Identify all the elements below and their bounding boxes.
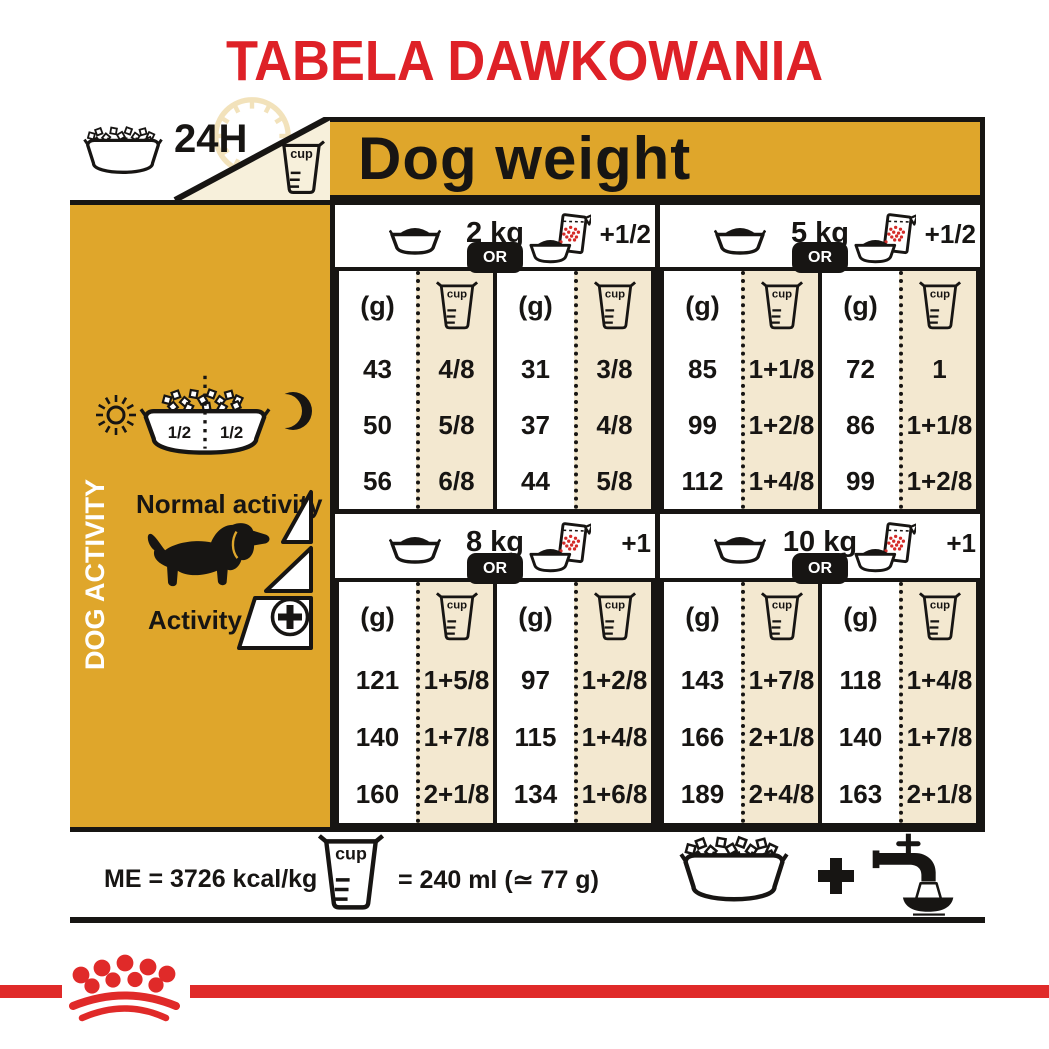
subtable: (g) 72 86 99 cup 1 1+1/8 1+2/8: [818, 267, 980, 513]
plus-icon: [816, 856, 856, 896]
bowl-and-pack-icon: [854, 211, 916, 265]
value-cell: 121: [339, 652, 416, 709]
dog-activity-sidebar: 1/2 1/2 DOG ACTIVITY Normal activity Act…: [70, 200, 330, 832]
grams-header: (g): [843, 602, 877, 633]
corner-24h-cell: 24H cup: [70, 117, 330, 200]
value-cell: 115: [497, 709, 574, 766]
value-cell: 1+2/8: [903, 453, 976, 509]
cup-icon: cup: [278, 140, 325, 196]
value-cell: 1+1/8: [903, 397, 976, 453]
dosing-board: 24H cup Dog weight: [70, 117, 985, 832]
value-cell: 3/8: [578, 341, 651, 397]
value-cell: 166: [664, 709, 741, 766]
dog-activity-label: DOG ACTIVITY: [80, 475, 111, 670]
half-portions-bowl-icon: 1/2 1/2: [136, 375, 274, 475]
dosing-grid: 2 kg OR +1/2 (g) 43 50 56: [330, 200, 985, 832]
weight-header-2kg: 2 kg OR +1/2: [335, 205, 655, 267]
or-badge: OR: [467, 242, 523, 273]
value-cell: 143: [664, 652, 741, 709]
value-cell: 50: [339, 397, 416, 453]
grams-column: (g) 43 50 56: [339, 271, 416, 509]
extra-portion-label: +1/2: [600, 219, 651, 250]
value-cell: 6/8: [420, 453, 493, 509]
subtable: (g) 97 115 134 cup 1+2/8 1+4/8 1+6/8: [493, 578, 655, 827]
value-cell: 1+7/8: [420, 709, 493, 766]
metabolizable-energy-label: ME = 3726 kcal/kg: [104, 865, 317, 894]
grams-column: (g) 118 140 163: [822, 582, 899, 823]
dog-weight-header: Dog weight: [330, 117, 985, 200]
extra-portion-label: +1: [621, 528, 651, 559]
cup-label: cup: [929, 599, 949, 611]
grams-column: (g) 97 115 134: [497, 582, 574, 823]
activity-label: Activity: [148, 605, 242, 636]
cup-icon: cup: [919, 592, 961, 642]
half-left-label: 1/2: [168, 423, 191, 442]
value-cell: 1: [903, 341, 976, 397]
moon-icon: [276, 388, 312, 434]
subtable: (g) 118 140 163 cup 1+4/8 1+7/8 2+1/8: [818, 578, 980, 827]
value-cell: 1+4/8: [745, 453, 818, 509]
bowl-and-pack-icon: [529, 520, 591, 574]
value-cell: 160: [339, 766, 416, 823]
weight-header-10kg: 10 kg OR +1: [660, 514, 980, 578]
weight-header-8kg: 8 kg OR +1: [335, 514, 655, 578]
value-cell: 5/8: [420, 397, 493, 453]
royal-canin-crown-logo: [60, 948, 192, 1026]
bowl-and-pack-icon: [854, 520, 916, 574]
cup-icon: cup: [594, 281, 636, 331]
value-cell: 99: [822, 453, 899, 509]
value-cell: 112: [664, 453, 741, 509]
grams-header: (g): [843, 291, 877, 322]
cup-column: cup 1+2/8 1+4/8 1+6/8: [574, 582, 651, 823]
or-badge: OR: [467, 553, 523, 584]
page-title: TABELA DAWKOWANIA: [0, 28, 1049, 94]
cup-volume-label: = 240 ml (≃ 77 g): [398, 865, 599, 895]
value-cell: 44: [497, 453, 574, 509]
cup-icon: cup: [436, 281, 478, 331]
value-cell: 118: [822, 652, 899, 709]
grams-header: (g): [360, 291, 394, 322]
kibble-bowl-icon: [658, 834, 810, 906]
grid-row-bottom: 8 kg OR +1 (g) 121 140 160: [335, 509, 980, 827]
value-cell: 1+5/8: [420, 652, 493, 709]
value-cell: 1+2/8: [745, 397, 818, 453]
weight-body: (g) 121 140 160 cup 1+5/8 1+7/8 2+1/8: [335, 578, 655, 827]
dosing-table-page: TABELA DAWKOWANIA 24H: [0, 0, 1049, 1049]
or-badge: OR: [792, 553, 848, 584]
cup-label: cup: [446, 599, 466, 611]
cup-label: cup: [335, 843, 367, 863]
grams-column: (g) 72 86 99: [822, 271, 899, 509]
cup-icon: cup: [594, 592, 636, 642]
half-right-label: 1/2: [220, 423, 243, 442]
value-cell: 37: [497, 397, 574, 453]
value-cell: 2+1/8: [420, 766, 493, 823]
cup-icon: cup: [761, 592, 803, 642]
weight-section-10kg: 10 kg OR +1 (g) 143 166 189: [655, 514, 980, 827]
weight-section-8kg: 8 kg OR +1 (g) 121 140 160: [335, 514, 655, 827]
value-cell: 99: [664, 397, 741, 453]
subtable: (g) 31 37 44 cup 3/8 4/8 5/8: [493, 267, 655, 513]
subtable: (g) 121 140 160 cup 1+5/8 1+7/8 2+1/8: [335, 578, 497, 827]
value-cell: 4/8: [578, 397, 651, 453]
cup-column: cup 1+4/8 1+7/8 2+1/8: [899, 582, 976, 823]
cup-label: cup: [290, 146, 313, 161]
kibble-bowl-icon: [82, 119, 164, 183]
value-cell: 31: [497, 341, 574, 397]
cup-label: cup: [771, 599, 791, 611]
dog-weight-label: Dog weight: [358, 124, 691, 193]
page-title-text: TABELA DAWKOWANIA: [226, 28, 823, 94]
value-cell: 85: [664, 341, 741, 397]
grams-header: (g): [360, 602, 394, 633]
cup-column: cup 1 1+1/8 1+2/8: [899, 271, 976, 509]
value-cell: 1+7/8: [903, 709, 976, 766]
cup-label: cup: [446, 288, 466, 300]
value-cell: 56: [339, 453, 416, 509]
grams-column: (g) 121 140 160: [339, 582, 416, 823]
value-cell: 163: [822, 766, 899, 823]
water-tap-icon: [864, 832, 962, 916]
value-cell: 1+1/8: [745, 341, 818, 397]
subtable: (g) 85 99 112 cup 1+1/8 1+2/8 1+4/8: [660, 267, 822, 513]
cup-label: cup: [771, 288, 791, 300]
sun-icon: [92, 391, 140, 439]
weight-section-2kg: 2 kg OR +1/2 (g) 43 50 56: [335, 205, 655, 509]
extra-portion-label: +1: [946, 528, 976, 559]
cup-icon: cup: [761, 281, 803, 331]
value-cell: 134: [497, 766, 574, 823]
cup-label: cup: [604, 288, 624, 300]
cup-icon: cup: [436, 592, 478, 642]
grams-header: (g): [518, 602, 552, 633]
subtable: (g) 43 50 56 cup 4/8 5/8 6/8: [335, 267, 497, 513]
grams-header: (g): [685, 602, 719, 633]
value-cell: 86: [822, 397, 899, 453]
grid-row-top: 2 kg OR +1/2 (g) 43 50 56: [335, 205, 980, 509]
cup-column: cup 1+5/8 1+7/8 2+1/8: [416, 582, 493, 823]
activity-plus-icon: [269, 596, 311, 638]
value-cell: 1+2/8: [578, 652, 651, 709]
cup-label: cup: [929, 288, 949, 300]
weight-body: (g) 143 166 189 cup 1+7/8 2+1/8 2+4/8: [660, 578, 980, 827]
cup-icon: cup: [318, 834, 384, 912]
cup-icon: cup: [919, 281, 961, 331]
footer-info: ME = 3726 kcal/kg cup = 240 ml (≃ 77 g): [70, 832, 985, 923]
extra-portion-label: +1/2: [925, 219, 976, 250]
weight-header-5kg: 5 kg OR +1/2: [660, 205, 980, 267]
weight-section-5kg: 5 kg OR +1/2 (g) 85 99 112: [655, 205, 980, 509]
weight-body: (g) 85 99 112 cup 1+1/8 1+2/8 1+4/8: [660, 267, 980, 513]
value-cell: 1+4/8: [903, 652, 976, 709]
value-cell: 43: [339, 341, 416, 397]
weight-body: (g) 43 50 56 cup 4/8 5/8 6/8: [335, 267, 655, 513]
value-cell: 189: [664, 766, 741, 823]
value-cell: 2+4/8: [745, 766, 818, 823]
or-badge: OR: [792, 242, 848, 273]
cup-column: cup 1+7/8 2+1/8 2+4/8: [741, 582, 818, 823]
grams-column: (g) 31 37 44: [497, 271, 574, 509]
bowl-and-pack-icon: [529, 211, 591, 265]
cup-column: cup 1+1/8 1+2/8 1+4/8: [741, 271, 818, 509]
value-cell: 5/8: [578, 453, 651, 509]
grams-column: (g) 85 99 112: [664, 271, 741, 509]
value-cell: 2+1/8: [903, 766, 976, 823]
cup-column: cup 4/8 5/8 6/8: [416, 271, 493, 509]
grams-column: (g) 143 166 189: [664, 582, 741, 823]
value-cell: 140: [822, 709, 899, 766]
value-cell: 72: [822, 341, 899, 397]
value-cell: 4/8: [420, 341, 493, 397]
grams-header: (g): [685, 291, 719, 322]
value-cell: 97: [497, 652, 574, 709]
value-cell: 1+6/8: [578, 766, 651, 823]
cup-label: cup: [604, 599, 624, 611]
value-cell: 140: [339, 709, 416, 766]
value-cell: 1+4/8: [578, 709, 651, 766]
subtable: (g) 143 166 189 cup 1+7/8 2+1/8 2+4/8: [660, 578, 822, 827]
cup-column: cup 3/8 4/8 5/8: [574, 271, 651, 509]
grams-header: (g): [518, 291, 552, 322]
value-cell: 2+1/8: [745, 709, 818, 766]
value-cell: 1+7/8: [745, 652, 818, 709]
